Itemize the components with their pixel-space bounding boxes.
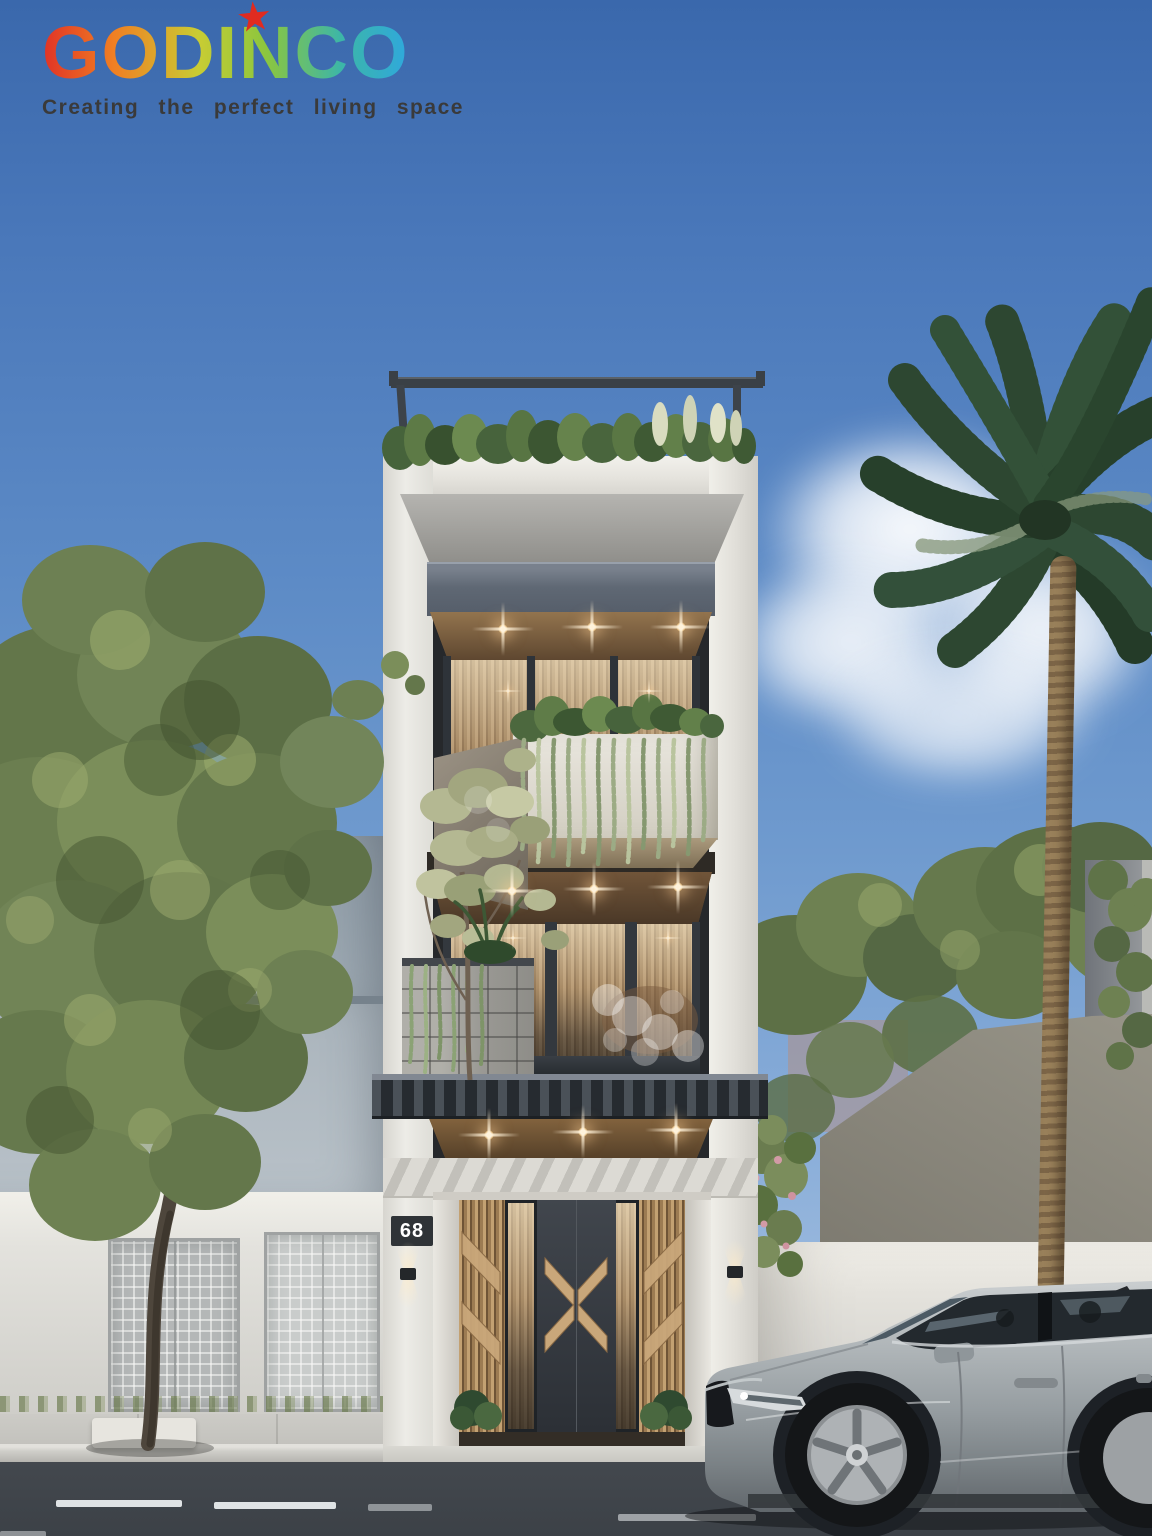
parked-suv	[0, 0, 1152, 1536]
brand-tagline: Creating the perfect living space	[42, 96, 464, 120]
logo: GODINCO ★ Creating the perfect living sp…	[42, 14, 464, 120]
brand-wordmark: GODINCO ★	[42, 14, 464, 92]
architectural-render: 68	[0, 0, 1152, 1536]
star-icon: ★	[236, 0, 274, 37]
front-wheel	[785, 1383, 929, 1527]
